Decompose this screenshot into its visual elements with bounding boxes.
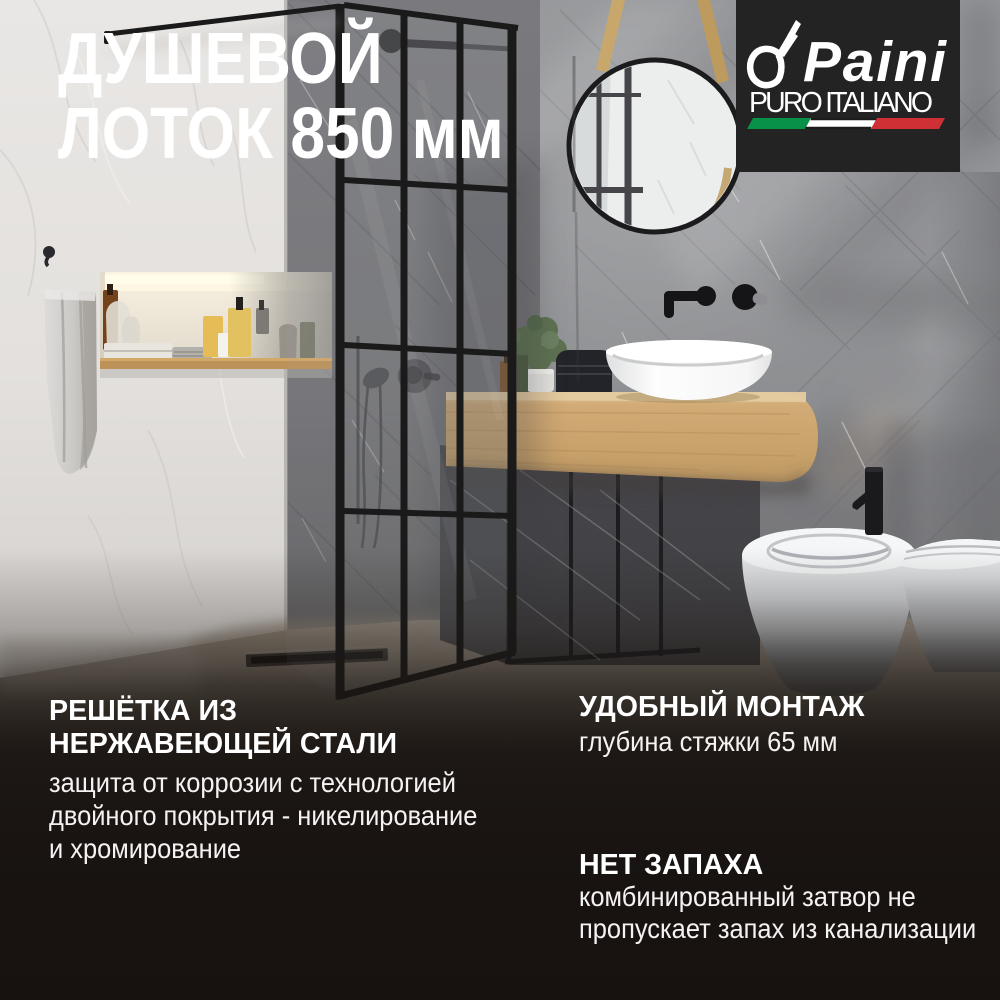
svg-text:Paini: Paini	[803, 30, 947, 94]
svg-text:PURO ITALIANO: PURO ITALIANO	[749, 87, 933, 119]
